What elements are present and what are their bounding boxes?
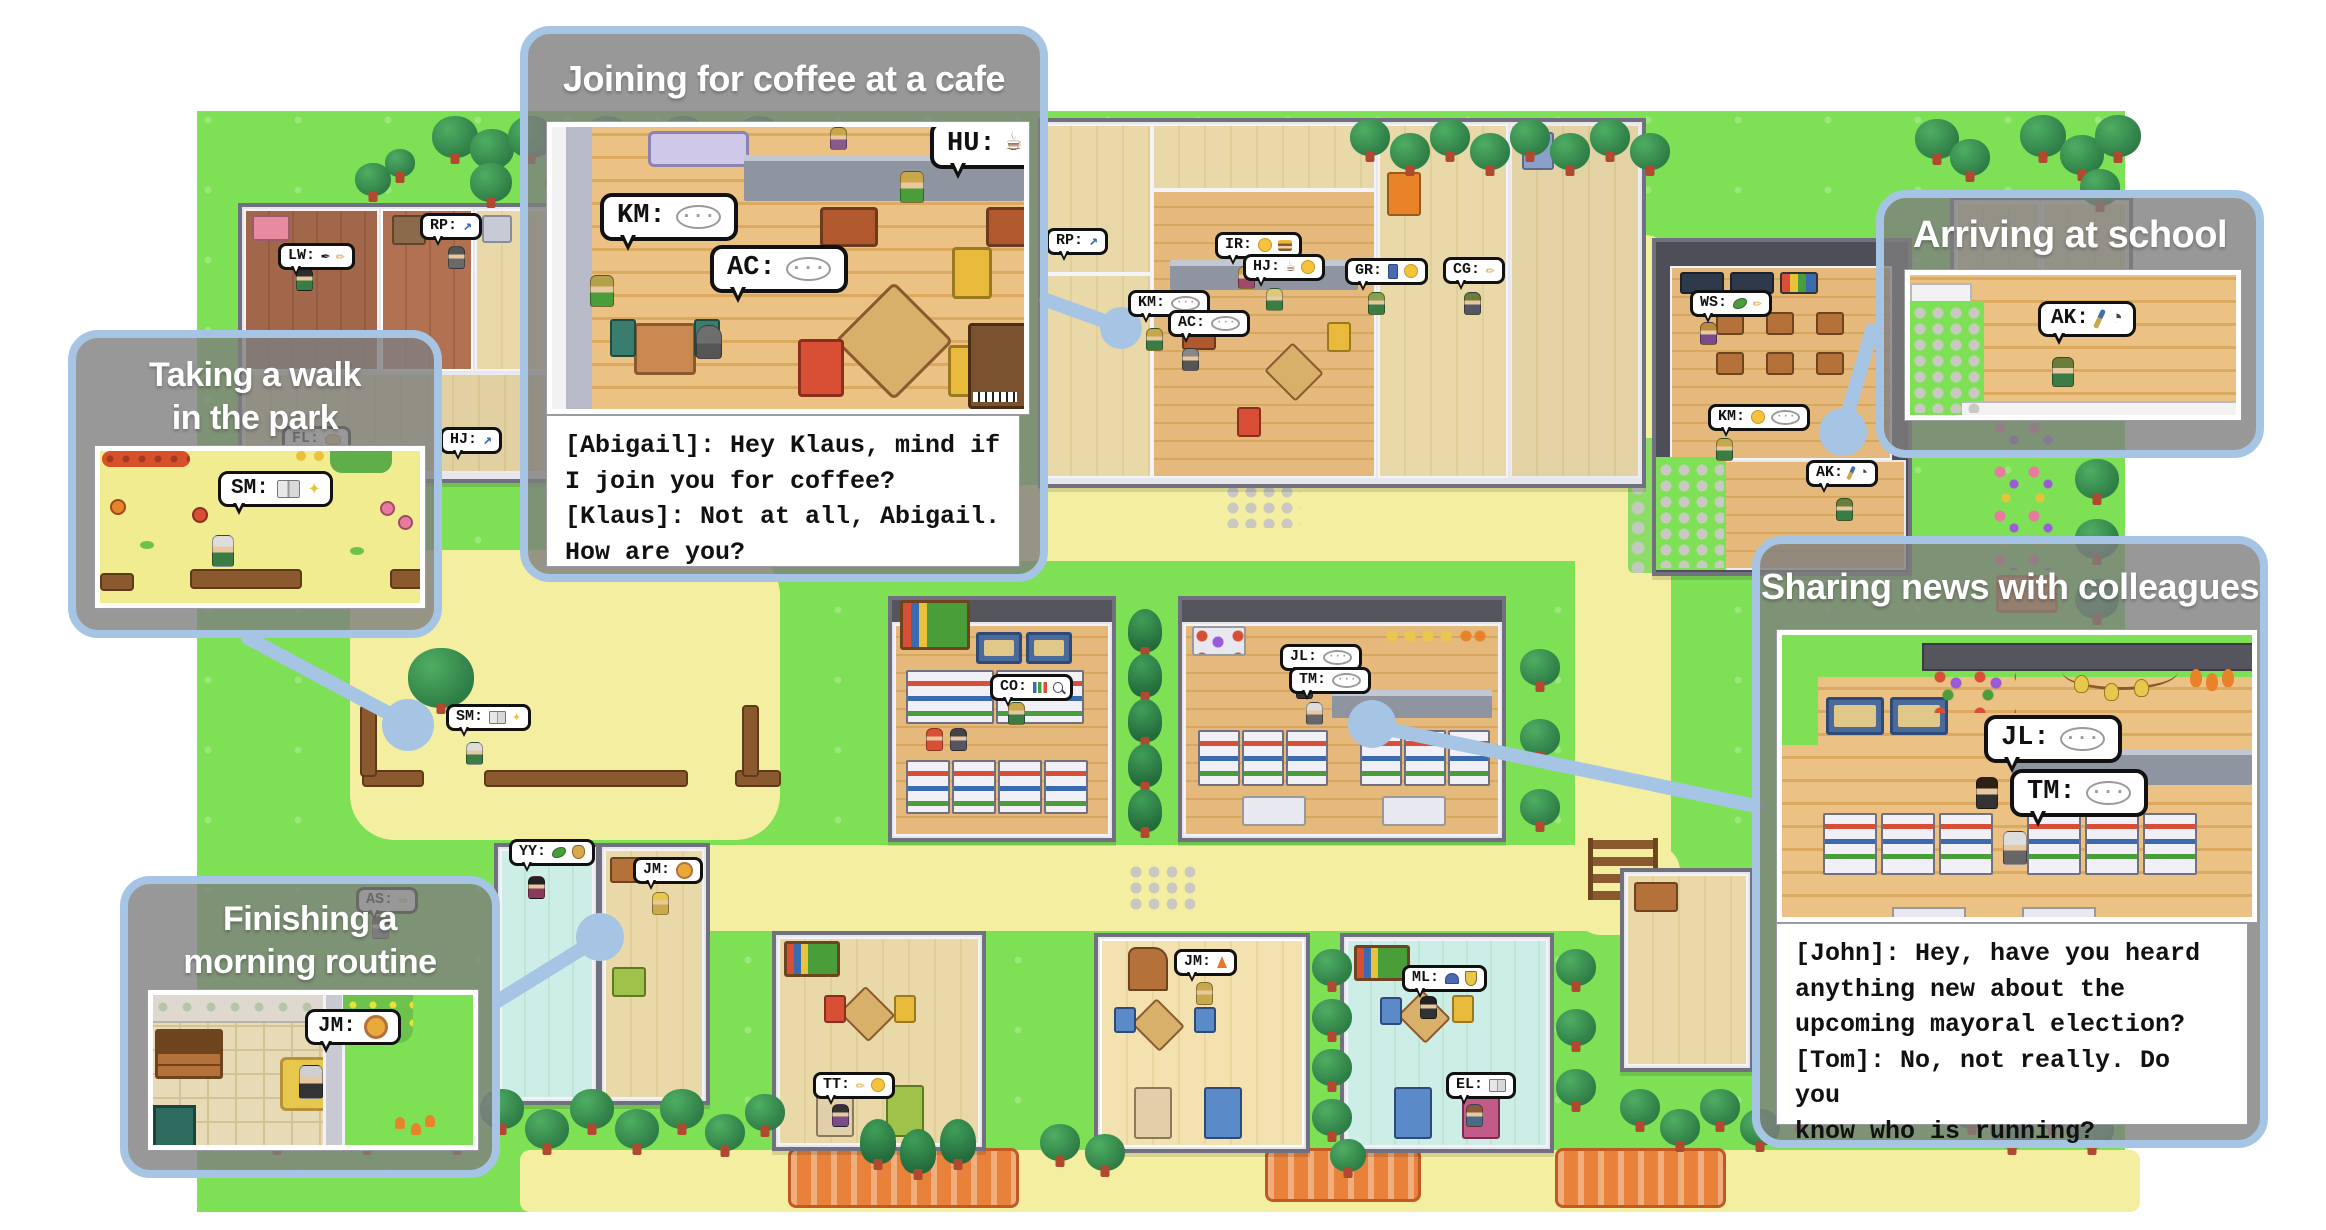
map-character <box>1196 982 1213 1005</box>
tree <box>1085 1134 1125 1171</box>
map-character <box>528 876 545 899</box>
speech-bubble-ak: AK:◔ <box>2038 301 2136 337</box>
pine-tree <box>860 1119 896 1164</box>
panel-title: Finishing a morning routine <box>128 898 492 983</box>
map-character <box>926 728 943 751</box>
tree <box>570 1089 614 1129</box>
pine-tree <box>1128 609 1162 652</box>
cafe-table <box>820 207 878 247</box>
tree <box>1590 119 1630 156</box>
cafe-table <box>986 207 1029 247</box>
map-character <box>1836 498 1853 521</box>
book-icon <box>277 480 300 498</box>
callout-panel-coffee: Joining for coffee at a cafe KM:··· AC:·… <box>520 26 1048 582</box>
lion-icon <box>364 1015 388 1039</box>
speech-bubble-jl: JL:··· <box>1984 715 2122 763</box>
pine-tree <box>1128 654 1162 697</box>
tree <box>1630 133 1670 170</box>
house-cyan-small <box>494 843 600 1105</box>
floor-mat <box>1826 697 1884 735</box>
tree <box>1312 1049 1352 1086</box>
sparkle-icon: ✦ <box>308 479 321 500</box>
bubble-label: KM: <box>617 200 666 234</box>
cafe-table <box>634 323 696 375</box>
market-store <box>1178 596 1506 842</box>
map-character <box>1368 292 1385 315</box>
coffee-icon: ☕ <box>1006 131 1022 158</box>
tree <box>1312 1099 1352 1136</box>
tree <box>385 149 415 177</box>
chat-icon: ··· <box>786 257 831 281</box>
park-screenshot: SM:✦ <box>95 446 425 608</box>
callout-panel-school: Arriving at school AK:◔ <box>1876 190 2264 458</box>
tree <box>1520 649 1560 686</box>
map-character <box>448 246 465 269</box>
supply-store <box>888 596 1116 842</box>
speech-bubble-tm: TM:··· <box>2010 769 2148 817</box>
bubble-label: SM: <box>231 476 269 502</box>
tree <box>1660 1109 1700 1146</box>
map-character <box>1306 702 1323 725</box>
pine-tree <box>1128 699 1162 742</box>
chat-icon: ··· <box>676 205 721 229</box>
map-character <box>1466 1104 1483 1127</box>
map-character <box>1420 996 1437 1019</box>
map-character <box>1238 266 1255 289</box>
coffee-dialogue: [Abigail]: Hey Klaus, mind if I join you… <box>547 416 1019 566</box>
panel-title: Arriving at school <box>1884 214 2256 257</box>
house-bottom-cyan <box>1340 933 1554 1153</box>
map-character <box>1008 702 1025 725</box>
tree <box>1556 1009 1596 1046</box>
brush-icon <box>2093 309 2106 329</box>
cafe-and-houses-block <box>1038 118 1646 488</box>
tree <box>1520 789 1560 826</box>
map-character <box>652 892 669 915</box>
tree <box>2075 459 2119 499</box>
tree <box>1620 1089 1660 1126</box>
morning-screenshot: JM: <box>148 990 478 1150</box>
map-character <box>1296 676 1313 699</box>
house-tan-small <box>598 843 710 1105</box>
tree <box>1312 999 1352 1036</box>
school <box>1652 238 1912 576</box>
map-character <box>1464 292 1481 315</box>
map-character <box>1182 348 1199 371</box>
tree <box>1470 133 1510 170</box>
tree <box>1700 1089 1740 1126</box>
tree <box>660 1089 704 1129</box>
map-character <box>296 268 313 291</box>
pine-tree <box>1128 744 1162 787</box>
tree <box>1556 1069 1596 1106</box>
pine-tree <box>940 1119 976 1164</box>
building-right <box>1620 868 1754 1072</box>
tree <box>745 1094 785 1131</box>
figure-stage: LW:✒✏RP:↗FL:HJ:↗RP:↗IR:HJ:☕KM:···AC:···G… <box>0 0 2326 1230</box>
rubble-patch <box>1128 864 1198 912</box>
map-character <box>466 742 483 765</box>
tree <box>2095 115 2141 157</box>
chat-icon: ··· <box>2086 781 2131 805</box>
map-character <box>1716 438 1733 461</box>
cafe-table <box>835 282 954 401</box>
park-fence <box>484 770 688 787</box>
dresser <box>155 1029 223 1079</box>
tree <box>1350 119 1390 156</box>
tree <box>1390 133 1430 170</box>
tree <box>1556 949 1596 986</box>
callout-panel-morning: Finishing a morning routine JM: <box>120 876 500 1178</box>
clock-icon: ◔ <box>2110 309 2123 330</box>
flower-display <box>1932 669 2016 713</box>
callout-panel-walk: Taking a walk in the park SM:✦ <box>68 330 442 638</box>
bubble-label: AK: <box>2051 306 2089 332</box>
panel-title: Joining for coffee at a cafe <box>528 58 1040 100</box>
map-character <box>1146 328 1163 351</box>
map-character <box>950 728 967 751</box>
tree <box>1510 119 1550 156</box>
tree <box>1312 949 1352 986</box>
park-big-tree <box>408 648 474 708</box>
park-fence <box>360 705 377 777</box>
bubble-label: TM: <box>2027 776 2076 810</box>
park-fence <box>742 705 759 777</box>
market-stall <box>1555 1148 1726 1208</box>
sofa <box>648 131 749 167</box>
school-screenshot: AK:◔ <box>1905 270 2241 420</box>
tree <box>525 1109 569 1149</box>
house-bottom-b <box>1094 933 1310 1153</box>
house-bottom-a <box>772 931 986 1151</box>
piano <box>968 323 1028 409</box>
tree <box>2020 115 2066 157</box>
tree <box>1520 719 1560 756</box>
tree <box>1430 119 1470 156</box>
panel-title: Sharing news with colleagues <box>1760 566 2260 608</box>
bubble-label: JM: <box>318 1014 356 1040</box>
callout-panel-sharing: Sharing news with colleagues <box>1752 536 2268 1148</box>
pine-tree <box>900 1129 936 1174</box>
chat-icon: ··· <box>2060 727 2105 751</box>
cafe-screenshot: KM:··· AC:··· HU:☕ <box>547 122 1029 414</box>
map-character <box>1266 288 1283 311</box>
tree <box>470 163 512 202</box>
pine-tree <box>1128 789 1162 832</box>
store-screenshot: JL:··· TM:··· <box>1777 630 2257 922</box>
sharing-dialogue: [John]: Hey, have you heard anything new… <box>1777 924 2247 1124</box>
bubble-label: JL: <box>2001 722 2050 756</box>
speech-bubble-km: KM:··· <box>600 193 738 241</box>
tree <box>1950 139 1990 176</box>
speech-bubble-jm: JM: <box>305 1009 401 1045</box>
hooded-character <box>696 325 722 359</box>
speech-bubble-hu: HU:☕ <box>930 122 1029 169</box>
speech-bubble-ac: AC:··· <box>710 245 848 293</box>
tree <box>1550 133 1590 170</box>
character-john <box>1976 777 1998 809</box>
tree <box>1330 1139 1366 1172</box>
character-tom <box>2003 831 2027 865</box>
tree <box>705 1114 745 1151</box>
map-character <box>1700 322 1717 345</box>
bubble-label: HU: <box>947 128 996 162</box>
bubble-label: AC: <box>727 252 776 286</box>
speech-bubble-sm: SM:✦ <box>218 471 333 507</box>
map-character <box>832 1104 849 1127</box>
panel-title: Taking a walk in the park <box>76 354 434 439</box>
tree <box>615 1109 659 1149</box>
tree <box>1040 1124 1080 1161</box>
